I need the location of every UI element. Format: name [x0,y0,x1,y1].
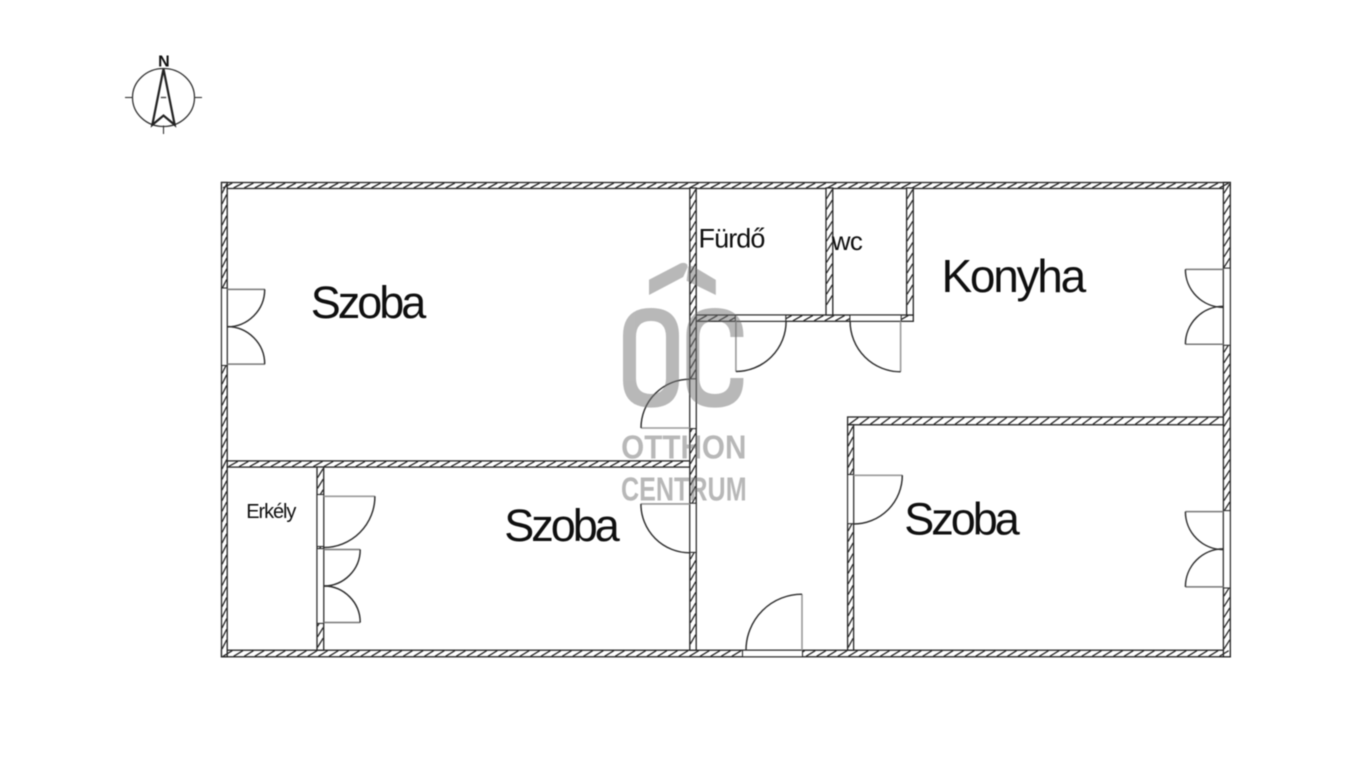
svg-text:Szoba: Szoba [504,500,621,551]
svg-text:CENTRUM: CENTRUM [621,471,747,508]
svg-text:Erkély: Erkély [246,501,296,523]
svg-text:Szoba: Szoba [311,277,428,328]
svg-text:Szoba: Szoba [904,493,1021,544]
svg-text:N: N [158,54,170,71]
svg-text:Fürdő: Fürdő [699,224,765,254]
svg-text:Konyha: Konyha [941,250,1086,302]
svg-text:wc: wc [831,226,863,256]
svg-text:OTTHON: OTTHON [621,429,746,466]
